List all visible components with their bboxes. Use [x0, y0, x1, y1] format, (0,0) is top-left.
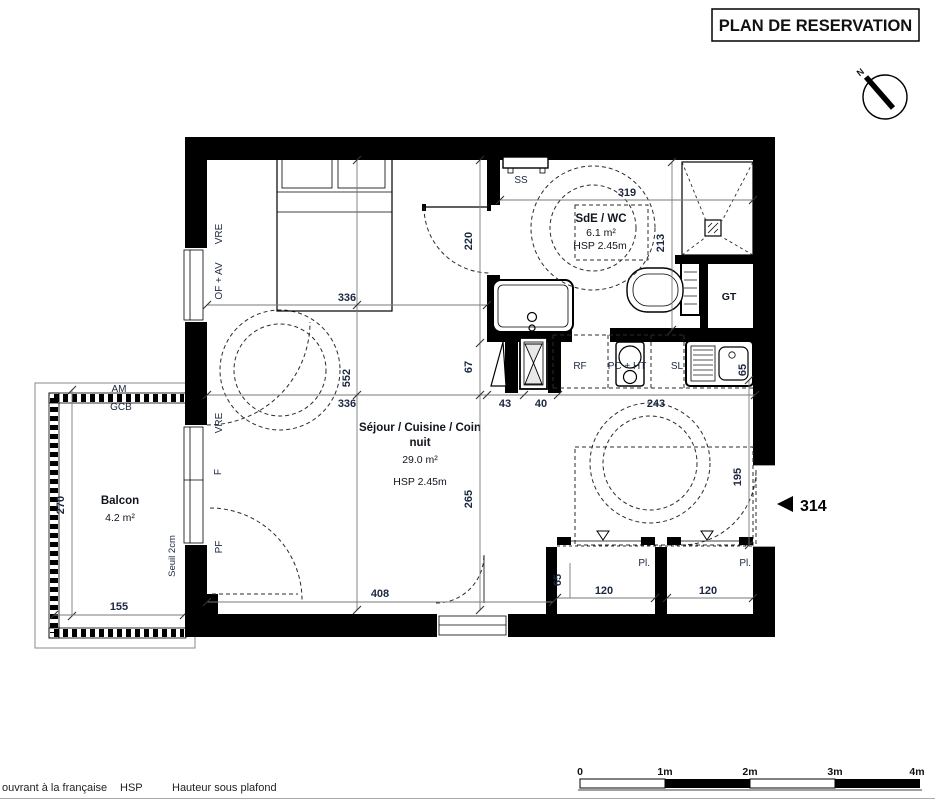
scale-4m: 4m [909, 766, 924, 778]
closet-right-label: Pl. [739, 558, 751, 569]
dim-195: 195 [732, 468, 744, 486]
floor-plan-page: PLAN DE RESERVATION N AM GCB 270 155 Bal… [0, 0, 935, 800]
usage-rect-sejour [575, 447, 753, 545]
window-swing-bedroom [207, 322, 310, 425]
sde-area: 6.1 m² [586, 227, 616, 239]
dim-270: 270 [55, 496, 67, 514]
sejour-room: Séjour / Cuisine / Coin nuit 29.0 m² HSP… [220, 310, 753, 545]
slide-rail-cap [641, 537, 655, 545]
threshold-label: Seuil 2cm [167, 535, 178, 577]
bottom-window-swing [436, 555, 484, 603]
table-circle-outer [590, 403, 710, 523]
dim-243: 243 [647, 398, 665, 410]
dim-408: 408 [371, 588, 389, 600]
label-vre-top: VRE [214, 223, 225, 244]
scale-3m: 3m [827, 766, 842, 778]
cooktop-label: PC + HT [608, 361, 647, 372]
toilet-bowl-icon [627, 268, 683, 312]
wall-duct-left [505, 333, 518, 393]
dim-213: 213 [655, 234, 667, 252]
label-of-av: OF + AV [214, 262, 225, 300]
sl-label: SL [671, 361, 684, 372]
dim-120-left: 120 [595, 585, 613, 597]
closets: Pl. Pl. 120 120 65 [552, 531, 757, 614]
toilet-cistern-icon [681, 263, 700, 315]
washbasin-icon [493, 280, 573, 332]
table-circle-inner [603, 416, 697, 510]
unit-arrow-icon [777, 496, 793, 512]
pillow-right [338, 158, 385, 188]
wall-left [185, 137, 207, 637]
label-f: F [213, 469, 224, 475]
dim-220: 220 [463, 232, 475, 250]
kitchen: RF PC + HT SL 65 [491, 335, 753, 389]
label-vre-mid: VRE [214, 412, 225, 433]
unit-marker: 314 [777, 496, 827, 515]
dim-336-top: 336 [338, 292, 356, 304]
dim-265: 265 [463, 490, 475, 508]
north-label: N [855, 66, 866, 78]
floor-plan-drawing: PLAN DE RESERVATION N AM GCB 270 155 Bal… [0, 0, 935, 800]
title-block: PLAN DE RESERVATION [712, 9, 919, 41]
legend-hsp-full: Hauteur sous plafond [172, 782, 277, 794]
label-pf: PF [214, 541, 225, 554]
slide-rail-cap [557, 537, 571, 545]
shower-diagonals [682, 162, 753, 255]
slide-rail-cap [667, 537, 681, 545]
dim-552: 552 [341, 369, 353, 387]
sde-hsp: HSP 2.45m [573, 240, 627, 252]
dim-67: 67 [463, 361, 475, 373]
balcony-gcb-label: GCB [110, 402, 132, 413]
closet-left-label: Pl. [638, 558, 650, 569]
page-title: PLAN DE RESERVATION [719, 17, 912, 35]
wall-gt-west [700, 264, 708, 330]
wall-sde-west-top [487, 160, 500, 205]
towel-rail-label: SS [514, 175, 528, 186]
wall-closet-divider [655, 547, 667, 614]
legend-ouvrant: ouvrant à la française [2, 782, 107, 794]
sde-wc-room: SS GT SdE / WC 6.1 m² HSP 2.45m [493, 157, 753, 332]
dim-65-sink: 65 [737, 364, 749, 376]
window-of-av-opening [181, 248, 209, 322]
wall-top [185, 137, 775, 160]
balcony-area: 4.2 m² [105, 512, 135, 524]
balcony-name: Balcon [101, 495, 139, 507]
balcony: AM GCB 270 155 Balcon 4.2 m² Seuil 2cm [35, 383, 195, 648]
wall-right [753, 137, 775, 637]
door-leaf-triangle [491, 342, 506, 386]
dim-336-mid: 336 [338, 398, 356, 410]
balcony-am-label: AM [112, 384, 127, 395]
dim-40: 40 [535, 398, 547, 410]
wall-corner-step [200, 594, 218, 616]
fridge-label: RF [573, 361, 586, 372]
unit-number: 314 [800, 498, 827, 515]
dim-319: 319 [618, 187, 636, 199]
towel-rail-icon [503, 157, 548, 168]
dim-120-right: 120 [699, 585, 717, 597]
dim-43: 43 [499, 398, 511, 410]
window-f-pf-opening [181, 425, 209, 545]
sejour-name-1: Séjour / Cuisine / Coin [359, 422, 481, 434]
sejour-name-2: nuit [409, 437, 430, 449]
shower-icon [682, 162, 753, 255]
scale-bar: 0 1m 2m 3m 4m [577, 766, 925, 790]
sde-name: SdE / WC [575, 213, 626, 225]
dim-65-closet: 65 [552, 574, 564, 586]
north-arrow-icon: N [855, 66, 907, 119]
scale-0: 0 [577, 766, 583, 778]
scale-1m: 1m [657, 766, 672, 778]
sejour-hsp: HSP 2.45m [393, 476, 447, 488]
wall-duct-right [548, 333, 561, 393]
scale-2m: 2m [742, 766, 757, 778]
armchair-circle-inner [234, 324, 326, 416]
sejour-area: 29.0 m² [402, 454, 438, 466]
legend-hsp-abbr: HSP [120, 782, 143, 794]
dim-155: 155 [110, 601, 128, 613]
pillow-left [282, 158, 332, 188]
sliding-door-marker [597, 531, 609, 540]
armchair-circle-outer [220, 310, 340, 430]
bed-icon [277, 153, 392, 311]
north-needle [866, 77, 893, 108]
gt-label: GT [722, 291, 737, 303]
entry-door-swing [681, 470, 756, 545]
